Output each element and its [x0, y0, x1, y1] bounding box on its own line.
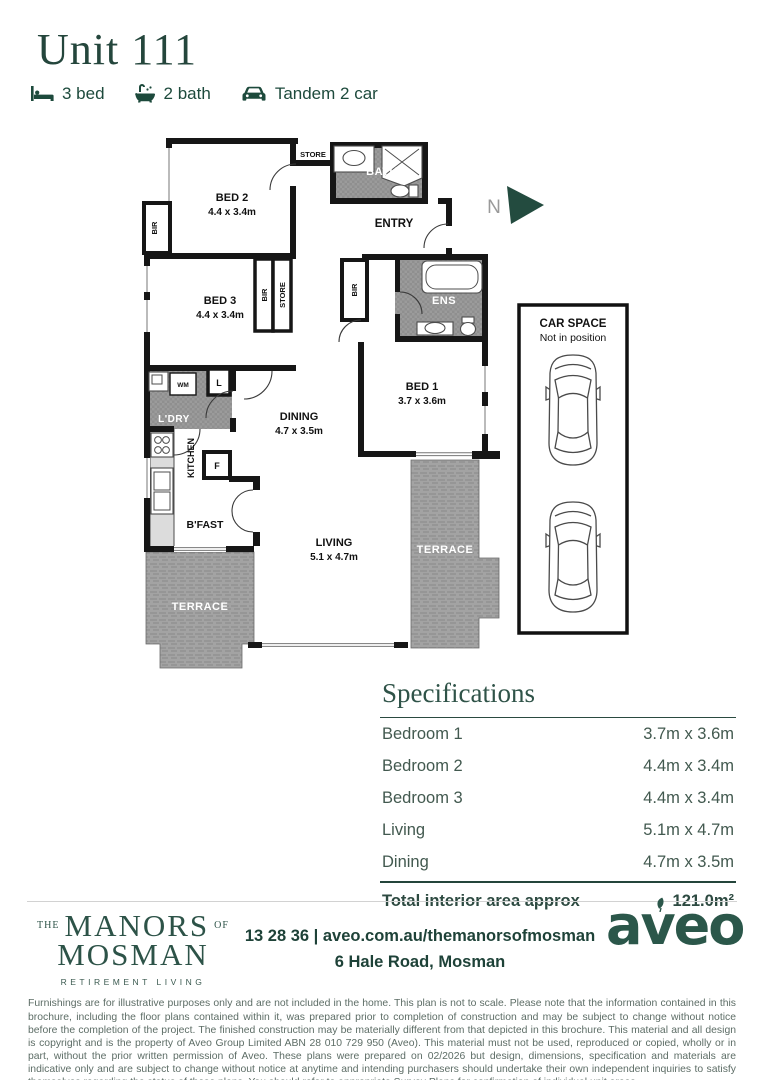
spec-label: Bedroom 1	[382, 725, 463, 744]
manors-of-mosman-logo: THE MANORS OF MOSMAN RETIREMENT LIVING	[28, 911, 238, 987]
spec-row-bedroom2: Bedroom 2 4.4m x 3.4m	[380, 750, 736, 782]
car-bottom-icon	[546, 502, 600, 612]
brand-manors: MANORS	[65, 911, 210, 940]
bed1-bir-label: BIR	[350, 283, 359, 297]
bed1-label: BED 1	[406, 381, 438, 393]
bfast-label: B'FAST	[187, 519, 225, 531]
feature-bath: 2 bath	[135, 83, 211, 104]
store-top-label: STORE	[300, 150, 326, 159]
terrace-left-label: TERRACE	[172, 601, 229, 613]
linen-label: L	[216, 378, 222, 388]
living-dims: 5.1 x 4.7m	[310, 552, 358, 563]
dining-label: DINING	[280, 411, 319, 423]
living-label: LIVING	[316, 537, 353, 549]
page-title: Unit 111	[37, 24, 197, 75]
bed3-bir-label: BIR	[260, 288, 269, 302]
bed2-label: BED 2	[216, 192, 248, 204]
bed3-label: BED 3	[204, 295, 236, 307]
legal-disclaimer: Furnishings are for illustrative purpose…	[28, 997, 736, 1080]
feature-car-label: Tandem 2 car	[275, 84, 378, 104]
brand-line1: THE MANORS OF	[28, 911, 238, 940]
bed-icon	[30, 85, 54, 102]
kitchen-label: KITCHEN	[186, 438, 196, 478]
contact-phone-web: 13 28 36 | aveo.com.au/themanorsofmosman	[240, 923, 600, 949]
aveo-leaf-icon	[653, 897, 669, 912]
spec-label: Living	[382, 821, 425, 840]
specifications-heading: Specifications	[382, 678, 736, 709]
spec-row-living: Living 5.1m x 4.7m	[380, 814, 736, 846]
spec-value: 4.4m x 3.4m	[643, 789, 734, 808]
brand-mosman: MOSMAN	[28, 940, 238, 969]
feature-car: Tandem 2 car	[241, 84, 378, 104]
brand-tagline: RETIREMENT LIVING	[28, 977, 238, 987]
car-space-subtitle: Not in position	[540, 332, 607, 344]
north-indicator: N	[487, 186, 544, 224]
spec-label: Dining	[382, 853, 429, 872]
entry-label: ENTRY	[375, 218, 414, 230]
aveo-logo: aveo	[606, 899, 746, 953]
floor-plan: STORE BATH BED 2 4.4 x 3.4m BIR ENTRY BE…	[132, 128, 632, 670]
car-icon	[241, 85, 267, 103]
floor-plan-fixtures	[149, 146, 482, 514]
spec-value: 4.7m x 3.5m	[643, 853, 734, 872]
bath-label: BATH	[366, 166, 398, 178]
north-arrow-icon	[507, 186, 544, 224]
feature-bed: 3 bed	[30, 84, 105, 104]
brand-of: OF	[214, 920, 229, 931]
dining-dims: 4.7 x 3.5m	[275, 426, 323, 437]
bed1-dims: 3.7 x 3.6m	[398, 396, 446, 407]
spec-value: 5.1m x 4.7m	[643, 821, 734, 840]
brochure-page: Unit 111 3 bed 2 bath	[0, 0, 764, 1080]
spec-row-dining: Dining 4.7m x 3.5m	[380, 846, 736, 878]
laundry-label: L'DRY	[158, 414, 190, 425]
feature-row: 3 bed 2 bath Tand	[30, 83, 378, 104]
spec-row-bedroom1: Bedroom 1 3.7m x 3.6m	[380, 718, 736, 750]
fridge-label: F	[214, 461, 220, 471]
car-top-icon	[546, 355, 600, 465]
spec-value: 4.4m x 3.4m	[643, 757, 734, 776]
contact-address: 6 Hale Road, Mosman	[240, 949, 600, 975]
contact-block: 13 28 36 | aveo.com.au/themanorsofmosman…	[240, 923, 600, 976]
north-label: N	[487, 197, 501, 218]
car-space-title: CAR SPACE	[540, 318, 607, 330]
spec-row-bedroom3: Bedroom 3 4.4m x 3.4m	[380, 782, 736, 814]
washing-machine-label: WM	[177, 382, 189, 389]
specifications-section: Specifications Bedroom 1 3.7m x 3.6m Bed…	[380, 678, 736, 911]
spec-label: Bedroom 3	[382, 789, 463, 808]
bed2-bir-label: BIR	[150, 221, 159, 235]
bed3-dims: 4.4 x 3.4m	[196, 310, 244, 321]
terrace-right-label: TERRACE	[417, 544, 474, 556]
ens-label: ENS	[432, 295, 456, 307]
spec-value: 3.7m x 3.6m	[643, 725, 734, 744]
feature-bath-label: 2 bath	[164, 84, 211, 104]
spec-label: Bedroom 2	[382, 757, 463, 776]
floor-plan-closets	[144, 203, 367, 478]
bed2-dims: 4.4 x 3.4m	[208, 207, 256, 218]
car-space-box: CAR SPACE Not in position	[519, 305, 627, 633]
brand-the: THE	[37, 920, 59, 931]
feature-bed-label: 3 bed	[62, 84, 105, 104]
aveo-logo-text: aveo	[606, 894, 743, 957]
bed3-store-label: STORE	[278, 282, 287, 308]
bath-icon	[135, 83, 156, 104]
